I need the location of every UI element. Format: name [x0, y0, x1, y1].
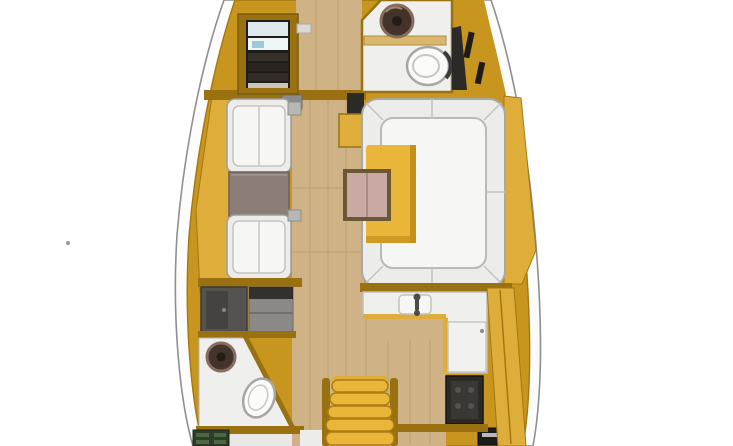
locker-shelf-4	[248, 63, 288, 71]
green-cabinet	[193, 430, 229, 446]
locker-shelf-5	[248, 73, 288, 81]
aft-shelf-beam	[396, 424, 488, 432]
galley-stove	[446, 376, 483, 424]
port-armchair-aft	[227, 210, 301, 279]
locker-shelf-6	[248, 83, 288, 88]
locker-shelf-1	[248, 22, 288, 36]
shower-stall	[201, 287, 247, 333]
forward-head	[362, 0, 467, 92]
wardrobe-locker	[238, 14, 298, 94]
forward-head-shelf	[364, 36, 446, 45]
armrest-tab	[288, 102, 301, 115]
port-armchair-forward	[227, 99, 301, 173]
aft-floor-white-sliver	[300, 430, 322, 446]
image-speck	[66, 241, 70, 245]
galley-fridge	[448, 322, 486, 372]
aft-wardrobe	[249, 287, 293, 333]
folding-leaf-table	[343, 169, 391, 221]
forward-cabin-floor	[296, 0, 362, 92]
port-aft-beam	[198, 278, 302, 287]
port-table	[229, 172, 289, 216]
aft-cabin-port-floor	[228, 434, 292, 446]
yacht-floorplan	[0, 0, 733, 446]
hatch-latch	[297, 24, 311, 33]
companionway-steps	[322, 376, 398, 446]
armrest-tab	[288, 210, 301, 221]
floorplan-canvas	[0, 0, 733, 446]
locker-shelf-3	[248, 53, 288, 61]
